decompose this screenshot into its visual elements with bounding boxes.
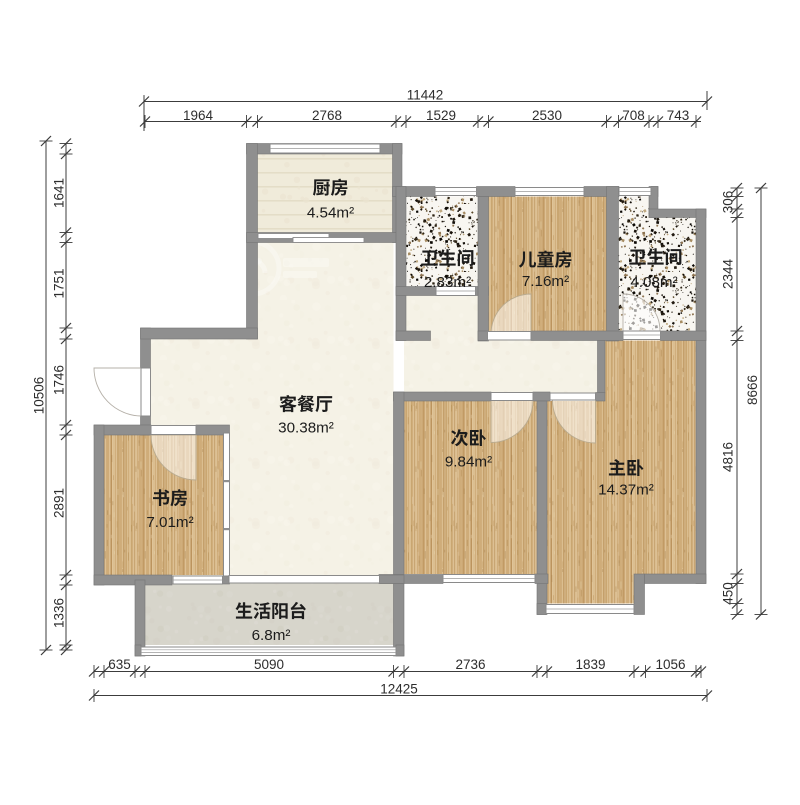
svg-text:11442: 11442: [407, 88, 444, 103]
svg-text:1641: 1641: [52, 178, 67, 208]
svg-text:1964: 1964: [183, 108, 214, 123]
svg-text:2736: 2736: [455, 657, 485, 672]
svg-text:2768: 2768: [312, 108, 342, 123]
svg-text:1529: 1529: [426, 108, 456, 123]
svg-text:1336: 1336: [52, 598, 67, 628]
svg-text:1751: 1751: [52, 268, 67, 298]
svg-text:2891: 2891: [52, 488, 67, 518]
svg-text:306: 306: [721, 191, 736, 214]
svg-text:8666: 8666: [745, 375, 760, 405]
svg-text:2344: 2344: [721, 258, 736, 289]
svg-text:2530: 2530: [532, 108, 562, 123]
svg-text:4816: 4816: [721, 442, 736, 472]
svg-text:14.37m²: 14.37m²: [598, 482, 654, 499]
svg-text:7.16m²: 7.16m²: [522, 273, 569, 290]
svg-text:1839: 1839: [575, 657, 605, 672]
svg-text:635: 635: [108, 657, 131, 672]
svg-text:10506: 10506: [32, 377, 47, 415]
svg-text:2.83m²: 2.83m²: [424, 274, 471, 291]
svg-text:708: 708: [622, 108, 645, 123]
svg-text:4.08m²: 4.08m²: [630, 274, 677, 291]
svg-text:1056: 1056: [655, 657, 685, 672]
svg-text:743: 743: [667, 108, 690, 123]
svg-text:450: 450: [721, 582, 736, 605]
svg-text:5090: 5090: [254, 657, 284, 672]
svg-text:6.8m²: 6.8m²: [252, 627, 291, 644]
svg-text:4.54m²: 4.54m²: [307, 205, 354, 222]
svg-text:30.38m²: 30.38m²: [278, 420, 334, 437]
svg-text:1746: 1746: [52, 365, 67, 395]
svg-text:9.84m²: 9.84m²: [445, 454, 492, 471]
svg-text:12425: 12425: [380, 682, 418, 697]
svg-text:7.01m²: 7.01m²: [146, 514, 193, 531]
